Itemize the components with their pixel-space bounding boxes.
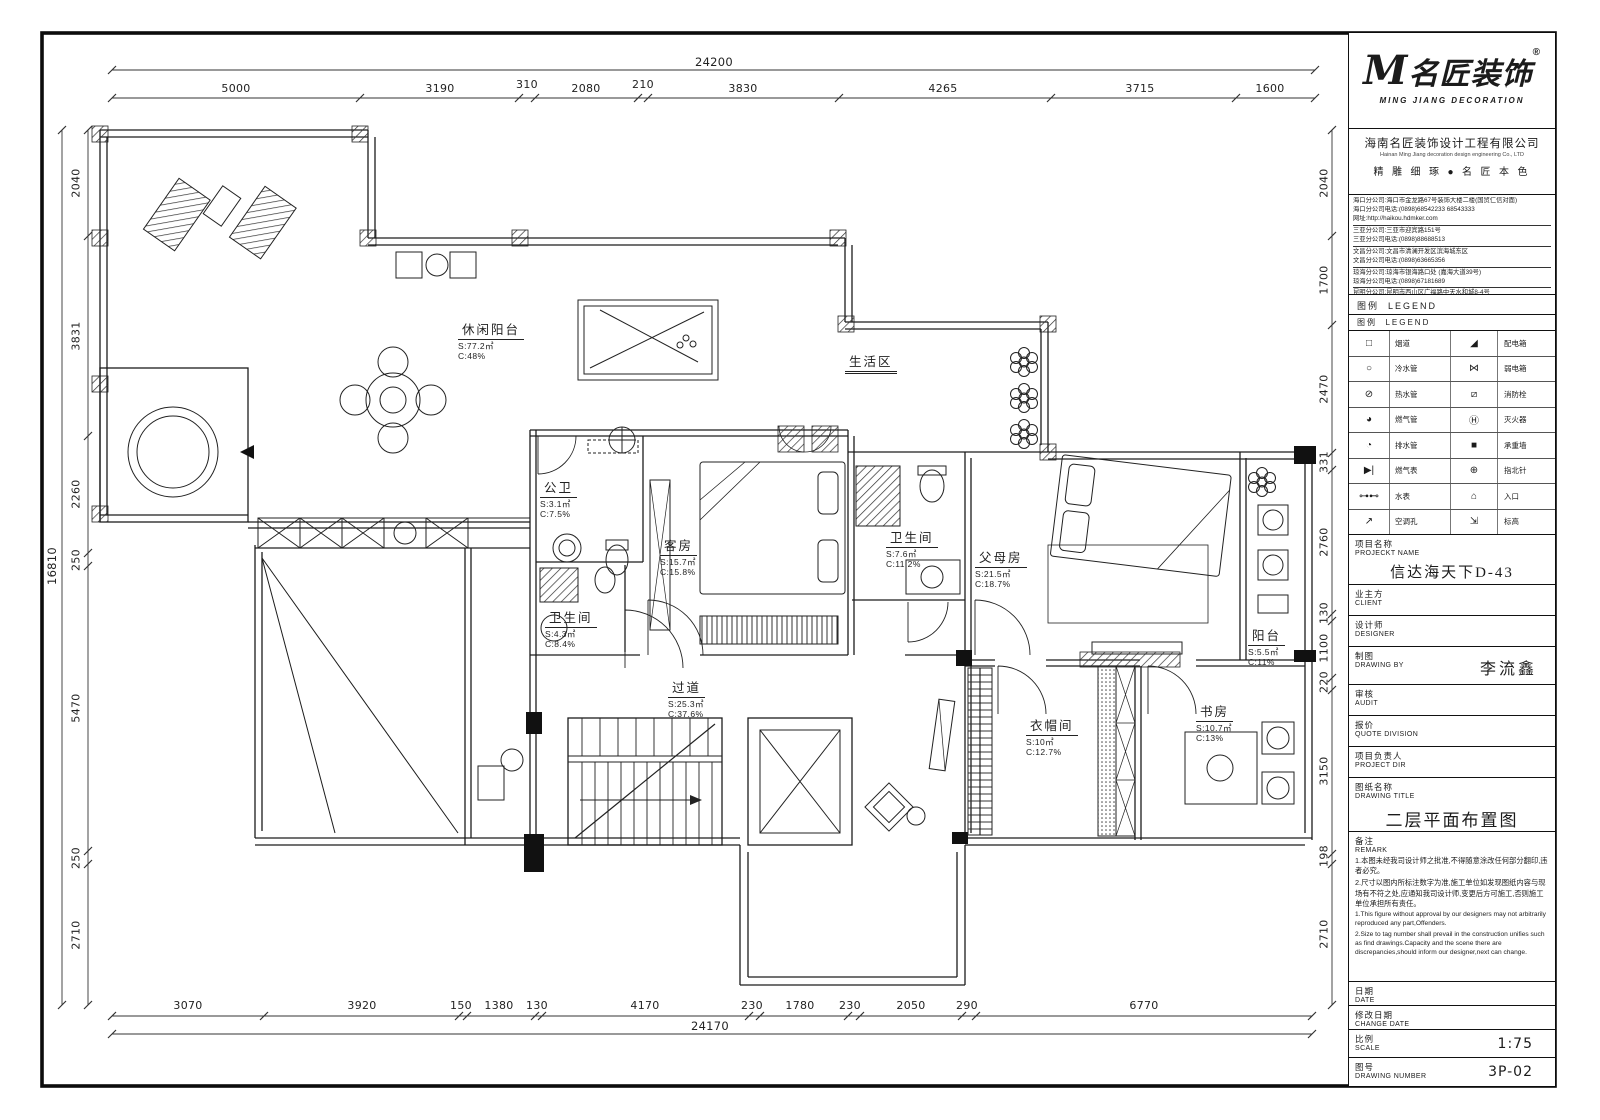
room-label-balcony: 阳台 S:5.5㎡ C:11% (1248, 626, 1285, 667)
remark-en: 2.Size to tag number shall prevail in th… (1355, 931, 1549, 958)
dim-left-seg: 2040 (70, 168, 83, 197)
drawing-number-row: 图号 DRAWING NUMBER 3P-02 (1349, 1058, 1555, 1086)
legend-row: □烟道◢配电箱 (1349, 331, 1555, 357)
dim-left-total: 16810 (45, 547, 59, 585)
registered-mark-icon: ® (1532, 47, 1540, 58)
fire-extinguisher-icon: Ⓗ (1451, 412, 1497, 427)
branch-line: 三亚分公司:三亚市迎宾路151号 (1353, 225, 1551, 236)
elevation-mark-icon: ⇲ (1451, 516, 1497, 527)
dim-top-total: 24200 (695, 55, 733, 69)
dim-right-seg: 198 (1318, 845, 1331, 867)
drawing-number-value: 3P-02 (1488, 1064, 1533, 1080)
dim-top-seg: 5000 (221, 82, 250, 95)
dim-top-seg: 1600 (1255, 82, 1284, 95)
dim-bottom-seg: 130 (526, 999, 548, 1012)
branch-line: 琼海分公司电话:(0898)67181689 (1353, 278, 1551, 287)
quote-row: 报价 QUOTE DIVISION (1349, 716, 1555, 747)
legend-row: ⊶⊷水表⌂入口 (1349, 484, 1555, 510)
scale-row: 比例 SCALE 1:75 (1349, 1030, 1555, 1058)
branch-line: 海口分公司电话:(0898)68542233 68543333 (1353, 206, 1551, 215)
room-label-corridor: 过道 S:25.3㎡ C:37.6% (668, 678, 705, 719)
dim-top-seg: 210 (632, 78, 654, 91)
corridor-misc (478, 699, 955, 831)
dim-bottom-seg: 230 (839, 999, 861, 1012)
remark-cn: 2.尺寸以图内所标注数字为准,施工单位如发现图纸内容与现场有不符之处,应通知我司… (1355, 878, 1549, 909)
dim-bottom-seg: 3070 (173, 999, 202, 1012)
room-label-guest-room: 客房 S:15.7㎡ C:15.8% (660, 536, 697, 577)
dim-bottom-seg: 6770 (1129, 999, 1158, 1012)
room-label-bathroom-small: 卫生间 S:4.3㎡ C:8.4% (545, 608, 597, 649)
dim-right-seg: 2710 (1318, 919, 1331, 948)
stairs (568, 718, 722, 845)
dim-right-seg: 1100 (1318, 633, 1331, 662)
dim-bottom-seg: 1380 (484, 999, 513, 1012)
legend-row: ⊘热水管⧄消防栓 (1349, 382, 1555, 408)
legend-subheader: 图例 LEGEND (1349, 315, 1555, 331)
audit-row: 审核 AUDIT (1349, 685, 1555, 716)
dim-bottom-seg: 1780 (785, 999, 814, 1012)
balcony-furniture (1258, 505, 1288, 613)
terrace-furniture (128, 178, 1276, 497)
dim-left-seg: 250 (70, 847, 83, 869)
ac-hole-icon: ↗ (1349, 516, 1389, 527)
company-name: 海南名匠装饰设计工程有限公司 (1349, 135, 1555, 151)
dim-bottom-seg: 150 (450, 999, 472, 1012)
date-row: 日期 DATE (1349, 982, 1555, 1006)
room-label-leisure-balcony: 休闲阳台 S:77.2㎡ C:48% (458, 320, 524, 361)
dim-right-seg: 220 (1318, 671, 1331, 693)
drawing-by-value: 李流鑫 (1480, 655, 1537, 679)
dim-right-seg: 3150 (1318, 756, 1331, 785)
branch-line: 昆明分公司:昆明市西山区广福路中天水和城8-4号 (1353, 287, 1551, 295)
hot-water-icon: ⊘ (1349, 389, 1389, 400)
dim-right-seg: 1700 (1318, 265, 1331, 294)
scale-value: 1:75 (1498, 1036, 1533, 1052)
project-dir-row: 项目负责人 PROJECT DIR (1349, 747, 1555, 778)
project-name: 信达海天下D-43 (1349, 561, 1555, 582)
legend-table: □烟道◢配电箱 ○冷水管⋈弱电箱 ⊘热水管⧄消防栓 ◕燃气管Ⓗ灭火器 ◔排水管■… (1349, 331, 1555, 535)
legend-row: ◔排水管■承重墙 (1349, 433, 1555, 459)
dim-top-seg: 310 (516, 78, 538, 91)
title-block: M名匠装饰® MING JIANG DECORATION 海南名匠装饰设计工程有… (1348, 33, 1555, 1086)
drawing-by-row: 制图 DRAWING BY 李流鑫 (1349, 647, 1555, 685)
dim-bottom-seg: 2050 (896, 999, 925, 1012)
room-label-study: 书房 S:10.7㎡ C:13% (1196, 702, 1233, 743)
dim-right-seg: 2040 (1318, 168, 1331, 197)
branch-line: 琼海分公司:琼海市银海路口处 (嘉海大道39号) (1353, 267, 1551, 278)
dim-left-seg: 2710 (70, 920, 83, 949)
logo-name: 名匠装饰 (1408, 58, 1532, 91)
room-label-bathroom: 卫生间 S:7.6㎡ C:11.2% (886, 528, 938, 569)
remark-cn: 1.本图未经我司设计师之批准,不得随意涂改任何部分翻印,违者必究。 (1355, 856, 1549, 876)
company-info: 海南名匠装饰设计工程有限公司 Hainan Ming Jiang decorat… (1349, 129, 1555, 195)
change-date-row: 修改日期 CHANGE DATE (1349, 1006, 1555, 1030)
water-meter-icon: ⊶⊷ (1349, 491, 1389, 502)
company-logo: M名匠装饰® MING JIANG DECORATION (1349, 33, 1555, 129)
dim-bottom-total: 24170 (691, 1019, 729, 1033)
dim-left-seg: 2260 (70, 479, 83, 508)
dim-right-seg: 130 (1318, 602, 1331, 624)
distribution-box-icon: ◢ (1451, 338, 1497, 349)
dim-right-seg: 2760 (1318, 527, 1331, 556)
dim-top-seg: 2080 (571, 82, 600, 95)
dim-top-seg: 3830 (728, 82, 757, 95)
room-label-cloakroom: 衣帽间 S:10㎡ C:12.7% (1026, 716, 1078, 757)
dim-top-seg: 4265 (928, 82, 957, 95)
branch-line: 文昌分公司电话:(0898)63665356 (1353, 257, 1551, 266)
north-compass-icon: ⊕ (1451, 465, 1497, 476)
gas-meter-icon: ▶| (1349, 465, 1389, 476)
branch-line: 三亚分公司电话:(0898)88688513 (1353, 236, 1551, 245)
walls (100, 130, 1312, 985)
gas-pipe-icon: ◕ (1349, 414, 1389, 425)
room-label-public-bath: 公卫 S:3.1㎡ C:7.5% (540, 478, 577, 519)
branch-line: 文昌分公司:文昌市清澜开发区滨海城东区 (1353, 246, 1551, 257)
remark-section: 备注 REMARK 1.本图未经我司设计师之批准,不得随意涂改任何部分翻印,违者… (1349, 832, 1555, 982)
project-name-row: 项目名称 PROJECKT NAME 信达海天下D-43 (1349, 535, 1555, 585)
drawing-sheet: 24200 5000 3190 310 2080 210 3830 4265 3… (0, 0, 1600, 1120)
room-label-living-zone: 生活区 (845, 352, 897, 375)
branch-line: 海口分公司:海口市金龙路67号装饰大楼二楼(国贸仁信对面) (1353, 197, 1551, 206)
remark-en: 1.This figure without approval by our de… (1355, 911, 1549, 929)
room-label-parents-room: 父母房 S:21.5㎡ C:18.7% (975, 548, 1027, 589)
parents-room-furniture (1048, 455, 1231, 654)
drain-pipe-icon: ◔ (1349, 440, 1389, 451)
dim-right-seg: 331 (1318, 451, 1331, 473)
logo-m-icon: M (1363, 47, 1408, 94)
dim-bottom-seg: 230 (741, 999, 763, 1012)
entrance-icon: ⌂ (1451, 491, 1497, 502)
branch-line: 网址:http://haikou.hdmker.com (1353, 215, 1551, 224)
dim-bottom-seg: 3920 (347, 999, 376, 1012)
load-bearing-wall-icon: ■ (1451, 440, 1497, 451)
dim-right-seg: 2470 (1318, 374, 1331, 403)
fire-hydrant-icon: ⧄ (1451, 389, 1497, 400)
legend-row: ◕燃气管Ⓗ灭火器 (1349, 408, 1555, 434)
flue-icon: □ (1349, 338, 1389, 349)
dim-left-seg: 5470 (70, 693, 83, 722)
designer-row: 设计师 DESIGNER (1349, 616, 1555, 647)
drawing-title: 二层平面布置图 (1349, 806, 1555, 831)
dim-top-seg: 3190 (425, 82, 454, 95)
branch-offices: 海口分公司:海口市金龙路67号装饰大楼二楼(国贸仁信对面) 海口分公司电话:(0… (1349, 195, 1555, 295)
drawing-title-row: 图纸名称 DRAWING TITLE 二层平面布置图 (1349, 778, 1555, 832)
legend-row: ○冷水管⋈弱电箱 (1349, 357, 1555, 383)
elevator (760, 730, 840, 833)
client-row: 业主方 CLIENT (1349, 585, 1555, 616)
dim-bottom-seg: 290 (956, 999, 978, 1012)
legend-row: ↗空调孔⇲标高 (1349, 510, 1555, 535)
legend-row: ▶|燃气表⊕指北针 (1349, 459, 1555, 485)
logo-subtitle: MING JIANG DECORATION (1349, 96, 1555, 105)
dim-left-seg: 250 (70, 549, 83, 571)
dim-bottom-seg: 4170 (630, 999, 659, 1012)
cold-water-icon: ○ (1349, 363, 1389, 374)
company-name-en: Hainan Ming Jiang decoration design engi… (1349, 152, 1555, 158)
company-slogan: 精 雕 细 琢 ● 名 匠 本 色 (1349, 163, 1555, 178)
legend-header: 图例 LEGEND (1349, 295, 1555, 315)
dim-top-seg: 3715 (1125, 82, 1154, 95)
dim-left-seg: 3831 (70, 321, 83, 350)
weak-current-box-icon: ⋈ (1451, 363, 1497, 374)
